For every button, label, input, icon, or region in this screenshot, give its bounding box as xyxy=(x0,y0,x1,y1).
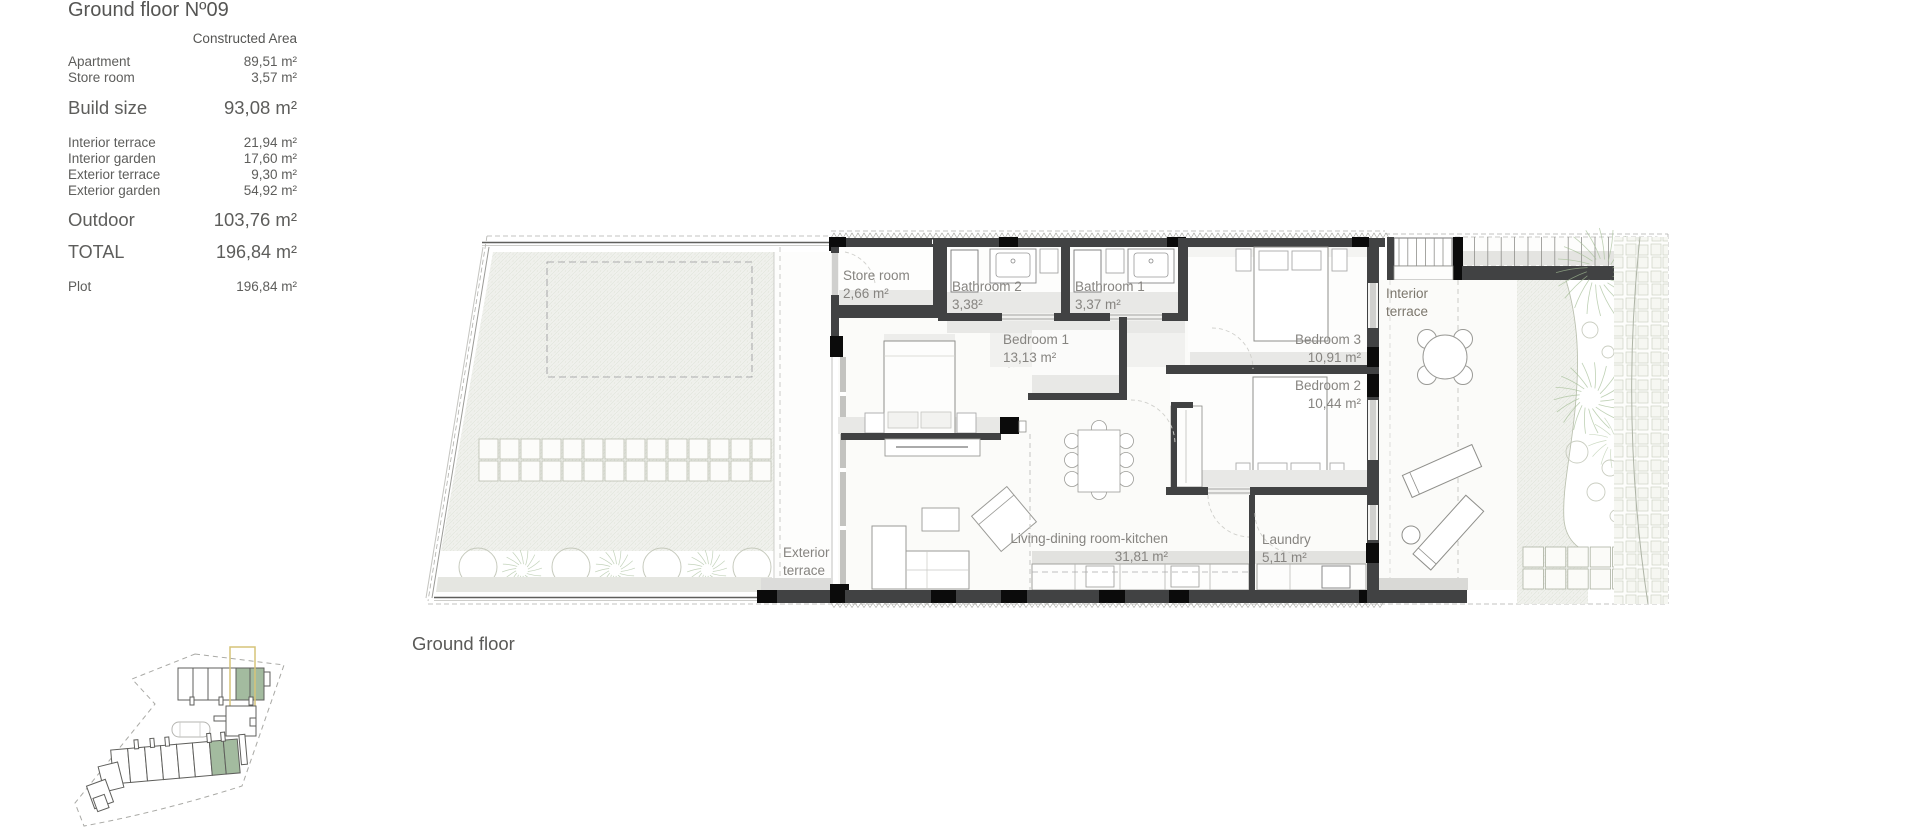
svg-text:Laundry: Laundry xyxy=(1262,532,1311,547)
svg-text:13,13 m²: 13,13 m² xyxy=(1003,350,1057,365)
svg-text:Bedroom 3: Bedroom 3 xyxy=(1295,332,1361,347)
svg-text:Living-dining room-kitchen: Living-dining room-kitchen xyxy=(1010,531,1168,546)
svg-text:17,60 m²: 17,60 m² xyxy=(244,151,298,166)
svg-text:TOTAL: TOTAL xyxy=(68,242,124,262)
svg-text:54,92 m²: 54,92 m² xyxy=(244,183,298,198)
svg-text:Store room: Store room xyxy=(68,70,135,85)
svg-text:Exterior garden: Exterior garden xyxy=(68,183,160,198)
svg-text:Constructed Area: Constructed Area xyxy=(193,31,298,46)
svg-text:Apartment: Apartment xyxy=(68,54,131,69)
svg-text:terrace: terrace xyxy=(783,563,825,578)
svg-text:Ground floor: Ground floor xyxy=(412,633,515,654)
svg-text:9,30 m²: 9,30 m² xyxy=(251,167,297,182)
svg-text:Outdoor: Outdoor xyxy=(68,209,135,230)
svg-text:Exterior terrace: Exterior terrace xyxy=(68,167,160,182)
svg-text:2,66 m²: 2,66 m² xyxy=(843,286,889,301)
svg-text:Exterior: Exterior xyxy=(783,545,830,560)
svg-text:Interior garden: Interior garden xyxy=(68,151,156,166)
svg-text:3,37 m²: 3,37 m² xyxy=(1075,297,1121,312)
svg-text:Interior terrace: Interior terrace xyxy=(68,135,156,150)
svg-text:3,38²: 3,38² xyxy=(952,297,983,312)
svg-text:196,84 m²: 196,84 m² xyxy=(216,242,297,262)
svg-text:10,44 m²: 10,44 m² xyxy=(1308,396,1362,411)
svg-text:31,81 m²: 31,81 m² xyxy=(1115,549,1169,564)
svg-text:89,51 m²: 89,51 m² xyxy=(244,54,298,69)
svg-text:Plot: Plot xyxy=(68,279,92,294)
svg-text:Bathroom 1: Bathroom 1 xyxy=(1075,279,1145,294)
svg-text:5,11 m²: 5,11 m² xyxy=(1262,550,1307,565)
svg-text:Bedroom 2: Bedroom 2 xyxy=(1295,378,1361,393)
svg-text:terrace: terrace xyxy=(1386,304,1428,319)
svg-text:Store room: Store room xyxy=(843,268,910,283)
svg-text:Build size: Build size xyxy=(68,97,147,118)
svg-text:103,76 m²: 103,76 m² xyxy=(214,209,297,230)
svg-text:Bedroom 1: Bedroom 1 xyxy=(1003,332,1069,347)
svg-text:10,91 m²: 10,91 m² xyxy=(1308,350,1362,365)
svg-text:Ground floor Nº09: Ground floor Nº09 xyxy=(68,0,229,21)
svg-text:Interior: Interior xyxy=(1386,286,1429,301)
svg-text:196,84 m²: 196,84 m² xyxy=(236,279,297,294)
svg-text:21,94 m²: 21,94 m² xyxy=(244,135,298,150)
svg-text:3,57 m²: 3,57 m² xyxy=(251,70,297,85)
svg-text:93,08 m²: 93,08 m² xyxy=(224,97,297,118)
svg-text:Bathroom 2: Bathroom 2 xyxy=(952,279,1022,294)
